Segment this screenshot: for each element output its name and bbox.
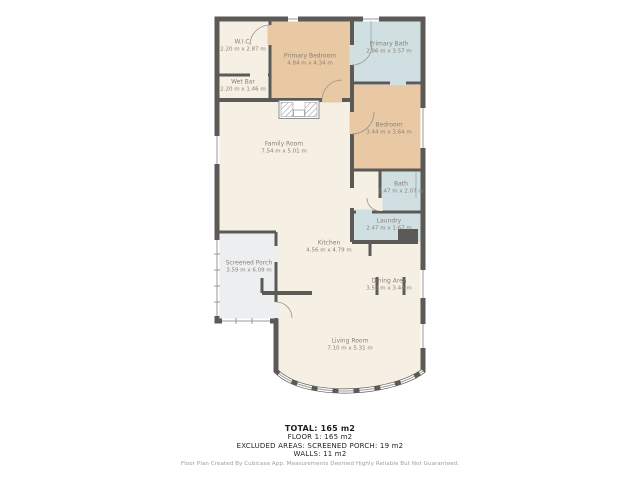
laundry-appliance xyxy=(398,229,418,242)
summary-walls: WALLS: 11 m2 xyxy=(0,450,640,458)
footer-disclaimer: Floor Plan Created By Cubicasa App. Meas… xyxy=(0,461,640,467)
screened-porch-fill xyxy=(217,232,276,321)
summary-floor1: FLOOR 1: 165 m2 xyxy=(0,433,640,441)
primary-bedroom-fill xyxy=(270,19,352,100)
area-summary: TOTAL: 165 m2 FLOOR 1: 165 m2 EXCLUDED A… xyxy=(0,424,640,458)
floor-plan xyxy=(0,0,640,480)
summary-total: TOTAL: 165 m2 xyxy=(0,424,640,433)
bath-fill xyxy=(380,170,423,212)
bedroom-fill xyxy=(352,85,423,170)
fireplace-symbol xyxy=(279,101,319,119)
summary-excluded: EXCLUDED AREAS: SCREENED PORCH: 19 m2 xyxy=(0,442,640,450)
primary-bath-fill xyxy=(352,19,423,83)
